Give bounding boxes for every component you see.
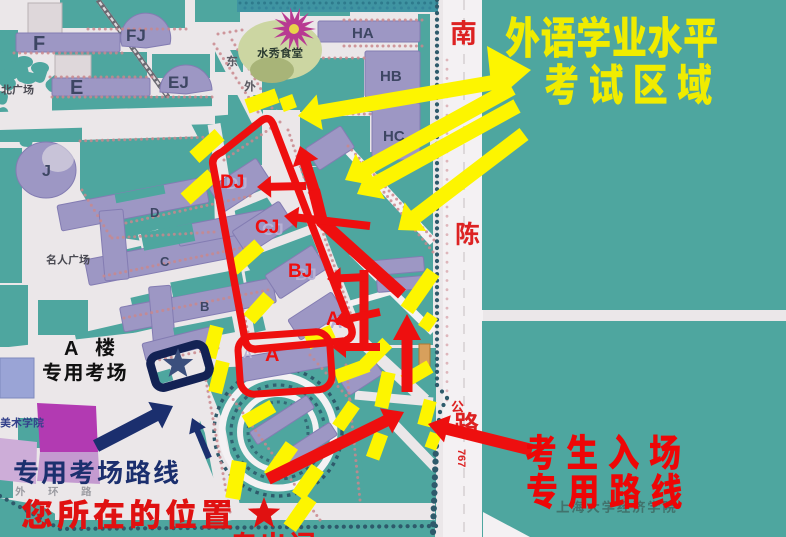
svg-text:AJ: AJ [326,309,350,330]
svg-text:EJ: EJ [168,73,189,92]
svg-text:BJ: BJ [288,261,312,282]
svg-text:F: F [33,33,45,55]
svg-text:HA: HA [352,25,374,42]
svg-text:C: C [160,254,170,269]
svg-text:B: B [200,299,209,314]
svg-text:A: A [64,338,78,360]
svg-text:HB: HB [380,68,402,85]
svg-text:767: 767 [455,449,467,467]
svg-text:E: E [70,77,83,99]
svg-text:DJ: DJ [220,172,244,193]
svg-text:CJ: CJ [255,217,279,238]
svg-text:FJ: FJ [126,26,146,45]
svg-text:D: D [150,205,159,220]
svg-text:J: J [42,163,51,180]
svg-text:A: A [265,344,279,366]
